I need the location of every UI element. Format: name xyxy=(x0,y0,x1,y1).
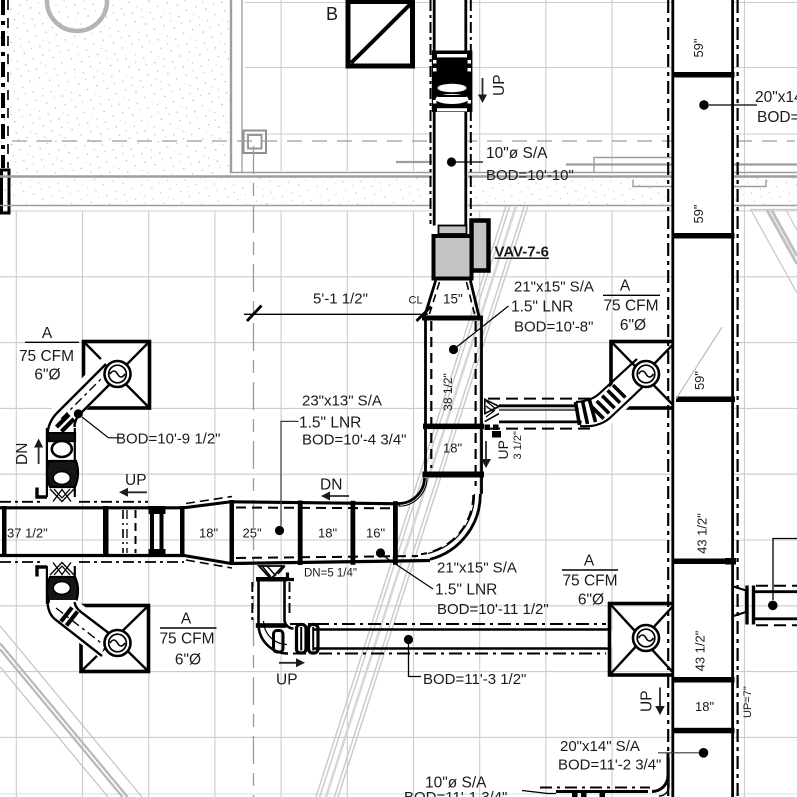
svg-text:A: A xyxy=(584,553,595,570)
svg-text:UP: UP xyxy=(491,74,508,96)
svg-text:6"Ø: 6"Ø xyxy=(578,592,604,609)
svg-text:21"x15" S/A: 21"x15" S/A xyxy=(514,279,594,296)
svg-text:UP: UP xyxy=(495,440,511,459)
svg-text:UP=7": UP=7" xyxy=(742,686,754,718)
svg-text:75 CFM: 75 CFM xyxy=(19,348,74,365)
svg-text:BOD=10'-9 1/2": BOD=10'-9 1/2" xyxy=(116,431,221,448)
svg-text:CL: CL xyxy=(409,295,423,307)
svg-text:1.5" LNR: 1.5" LNR xyxy=(435,582,497,599)
svg-text:20"x14" S/A: 20"x14" S/A xyxy=(560,738,640,755)
svg-text:6"Ø: 6"Ø xyxy=(175,652,201,669)
svg-text:16": 16" xyxy=(366,526,385,541)
svg-text:A: A xyxy=(42,325,53,342)
svg-text:UP: UP xyxy=(639,690,656,712)
svg-text:BOD=10'-8": BOD=10'-8" xyxy=(514,319,593,336)
svg-text:43 1/2": 43 1/2" xyxy=(695,513,710,554)
svg-text:1.5" LNR: 1.5" LNR xyxy=(511,299,573,316)
svg-text:DN: DN xyxy=(14,443,31,465)
svg-text:VAV-7-6: VAV-7-6 xyxy=(495,244,549,261)
svg-text:18": 18" xyxy=(199,526,218,541)
svg-text:5'-1 1/2": 5'-1 1/2" xyxy=(313,291,368,308)
svg-text:DN=5 1/4": DN=5 1/4" xyxy=(304,568,357,580)
svg-text:BOD=11'-3 1/2": BOD=11'-3 1/2" xyxy=(423,671,526,688)
svg-text:15": 15" xyxy=(443,292,463,307)
svg-text:B: B xyxy=(326,4,338,24)
svg-text:21"x15" S/A: 21"x15" S/A xyxy=(437,560,517,577)
svg-text:BOD=10'-11 1/2": BOD=10'-11 1/2" xyxy=(437,601,549,618)
svg-text:75 CFM: 75 CFM xyxy=(159,631,214,648)
svg-text:75 CFM: 75 CFM xyxy=(562,573,617,590)
svg-text:59": 59" xyxy=(691,204,706,223)
svg-text:UP: UP xyxy=(125,472,147,489)
svg-text:75 CFM: 75 CFM xyxy=(603,298,658,315)
svg-text:BOD=10'-4 3/4": BOD=10'-4 3/4" xyxy=(302,432,407,449)
svg-text:18": 18" xyxy=(443,441,462,456)
svg-text:10"ø S/A: 10"ø S/A xyxy=(486,145,548,162)
svg-text:BOD=10'-10": BOD=10'-10" xyxy=(486,167,574,184)
svg-text:59": 59" xyxy=(692,371,707,390)
svg-text:43 1/2": 43 1/2" xyxy=(693,630,708,671)
svg-text:BOD=11'-1 3/4": BOD=11'-1 3/4" xyxy=(404,789,507,797)
svg-text:6"Ø: 6"Ø xyxy=(34,367,60,384)
svg-text:18": 18" xyxy=(695,699,714,714)
svg-text:23"x13" S/A: 23"x13" S/A xyxy=(302,393,382,410)
svg-text:A: A xyxy=(181,611,192,628)
svg-text:37 1/2": 37 1/2" xyxy=(7,526,48,541)
svg-text:DN: DN xyxy=(320,477,342,494)
svg-text:1.5" LNR: 1.5" LNR xyxy=(299,415,361,432)
svg-text:25": 25" xyxy=(243,526,262,541)
svg-text:BOD=11'-2 3/4": BOD=11'-2 3/4" xyxy=(558,757,661,774)
svg-text:59": 59" xyxy=(691,38,706,57)
svg-text:18": 18" xyxy=(318,526,337,541)
svg-text:3 1/2": 3 1/2" xyxy=(512,431,524,459)
svg-text:BOD=: BOD= xyxy=(757,109,797,126)
svg-text:38 1/2": 38 1/2" xyxy=(441,373,455,411)
svg-text:6"Ø: 6"Ø xyxy=(620,317,646,334)
svg-text:UP: UP xyxy=(276,672,298,689)
svg-text:20"x14: 20"x14 xyxy=(755,89,797,106)
svg-text:A: A xyxy=(620,278,631,295)
